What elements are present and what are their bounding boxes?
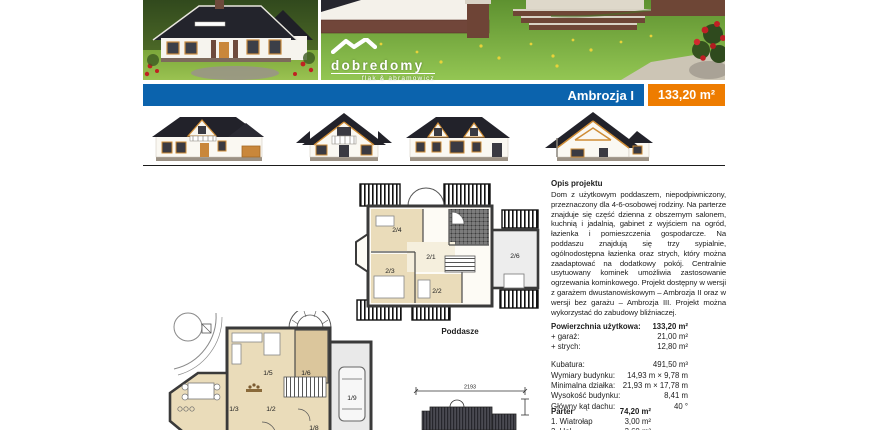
house-exterior-render (143, 0, 318, 80)
room-list-parter: Parter 74,20 m² 1. Wiatrołap 3,00 m² 2. … (551, 407, 651, 430)
logo-brand: dobredomy (331, 59, 451, 72)
room-label: 2/1 (426, 254, 436, 261)
spec-label: Kubatura: (551, 360, 585, 370)
floor-plan-parter: 1/5 1/6 1/3 1/2 1/9 1/8 (158, 311, 386, 430)
brand-logo: dobredomy flak & abramowicz (331, 38, 451, 82)
spec-label: + strych: (551, 342, 581, 352)
roof-width-dimension: 2193 (464, 385, 476, 391)
elevation-side-garage (150, 110, 268, 171)
area-value: 133,20 m² (658, 88, 715, 102)
spec-value: 40 ° (674, 402, 688, 412)
room-row: 1. Wiatrołap 3,00 m² (551, 417, 651, 427)
specs-table: Powierzchnia użytkowa: 133,20 m² + garaż… (551, 322, 688, 412)
room-label: 2/3 (385, 268, 395, 275)
room-label: 1/6 (301, 370, 311, 377)
project-name: Ambrozja I (568, 88, 634, 103)
room-label: 2/4 (392, 227, 402, 234)
spec-row: Powierzchnia użytkowa: 133,20 m² (551, 322, 688, 332)
logo-tagline: flak & abramowicz (331, 73, 435, 82)
room-label: 2/6 (510, 253, 520, 260)
spec-value: 12,80 m² (657, 342, 688, 352)
room-label: 1/3 (229, 406, 239, 413)
room-list-heading-row: Parter 74,20 m² (551, 407, 651, 417)
spec-label: + garaż: (551, 332, 579, 342)
photo-house-exterior (143, 0, 318, 80)
room-label: 2/2 (432, 288, 442, 295)
spec-value: 491,50 m³ (653, 360, 688, 370)
spec-row: Kubatura: 491,50 m³ (551, 360, 688, 370)
room-label: 1. Wiatrołap (551, 417, 593, 427)
spec-row: Wysokość budynku: 8,41 m (551, 391, 688, 401)
room-label: 1/2 (266, 406, 276, 413)
roof-icon (331, 38, 377, 54)
description-body: Dom z użytkowym poddaszem, niepodpiwnicz… (551, 190, 726, 317)
house-base (321, 0, 491, 38)
spec-value: 21,00 m² (657, 332, 688, 342)
spec-label: Wymiary budynku: (551, 371, 615, 381)
spec-label: Powierzchnia użytkowa: (551, 322, 641, 332)
spec-value: 133,20 m² (652, 322, 688, 332)
elevation-front-gable (294, 110, 394, 171)
spec-value: 8,41 m (664, 391, 688, 401)
spec-row: + garaż: 21,00 m² (551, 332, 688, 342)
spec-value: 21,93 m × 17,78 m (623, 381, 688, 391)
spec-spacer (551, 352, 688, 360)
spec-label: Wysokość budynku: (551, 391, 620, 401)
catalog-page: dobredomy flak & abramowicz Ambrozja I 1… (0, 0, 870, 430)
room-list-heading: Parter (551, 407, 574, 417)
spec-row: + strych: 12,80 m² (551, 342, 688, 352)
project-title-bar: Ambrozja I (143, 84, 644, 106)
roof-plan: 2193 (408, 381, 533, 430)
room-value: 3,00 m² (625, 417, 651, 427)
elevations-ground-line (143, 165, 725, 166)
poddasze-caption: Poddasze (370, 327, 550, 336)
description-heading: Opis projektu (551, 179, 726, 188)
area-badge: 133,20 m² (648, 84, 725, 106)
room-label: 1/5 (263, 370, 273, 377)
spec-label: Minimalna działka: (551, 381, 615, 391)
spec-row: Wymiary budynku: 14,93 m × 9,78 m (551, 371, 688, 381)
spec-row: Minimalna działka: 21,93 m × 17,78 m (551, 381, 688, 391)
elevation-gable-end (543, 110, 655, 171)
room-label: 1/8 (309, 425, 319, 430)
room-list-heading-value: 74,20 m² (620, 407, 651, 417)
spec-value: 14,93 m × 9,78 m (627, 371, 688, 381)
elevation-back (406, 110, 512, 171)
project-description: Opis projektu Dom z użytkowym poddaszem,… (551, 179, 726, 317)
room-label: 1/9 (347, 395, 357, 402)
